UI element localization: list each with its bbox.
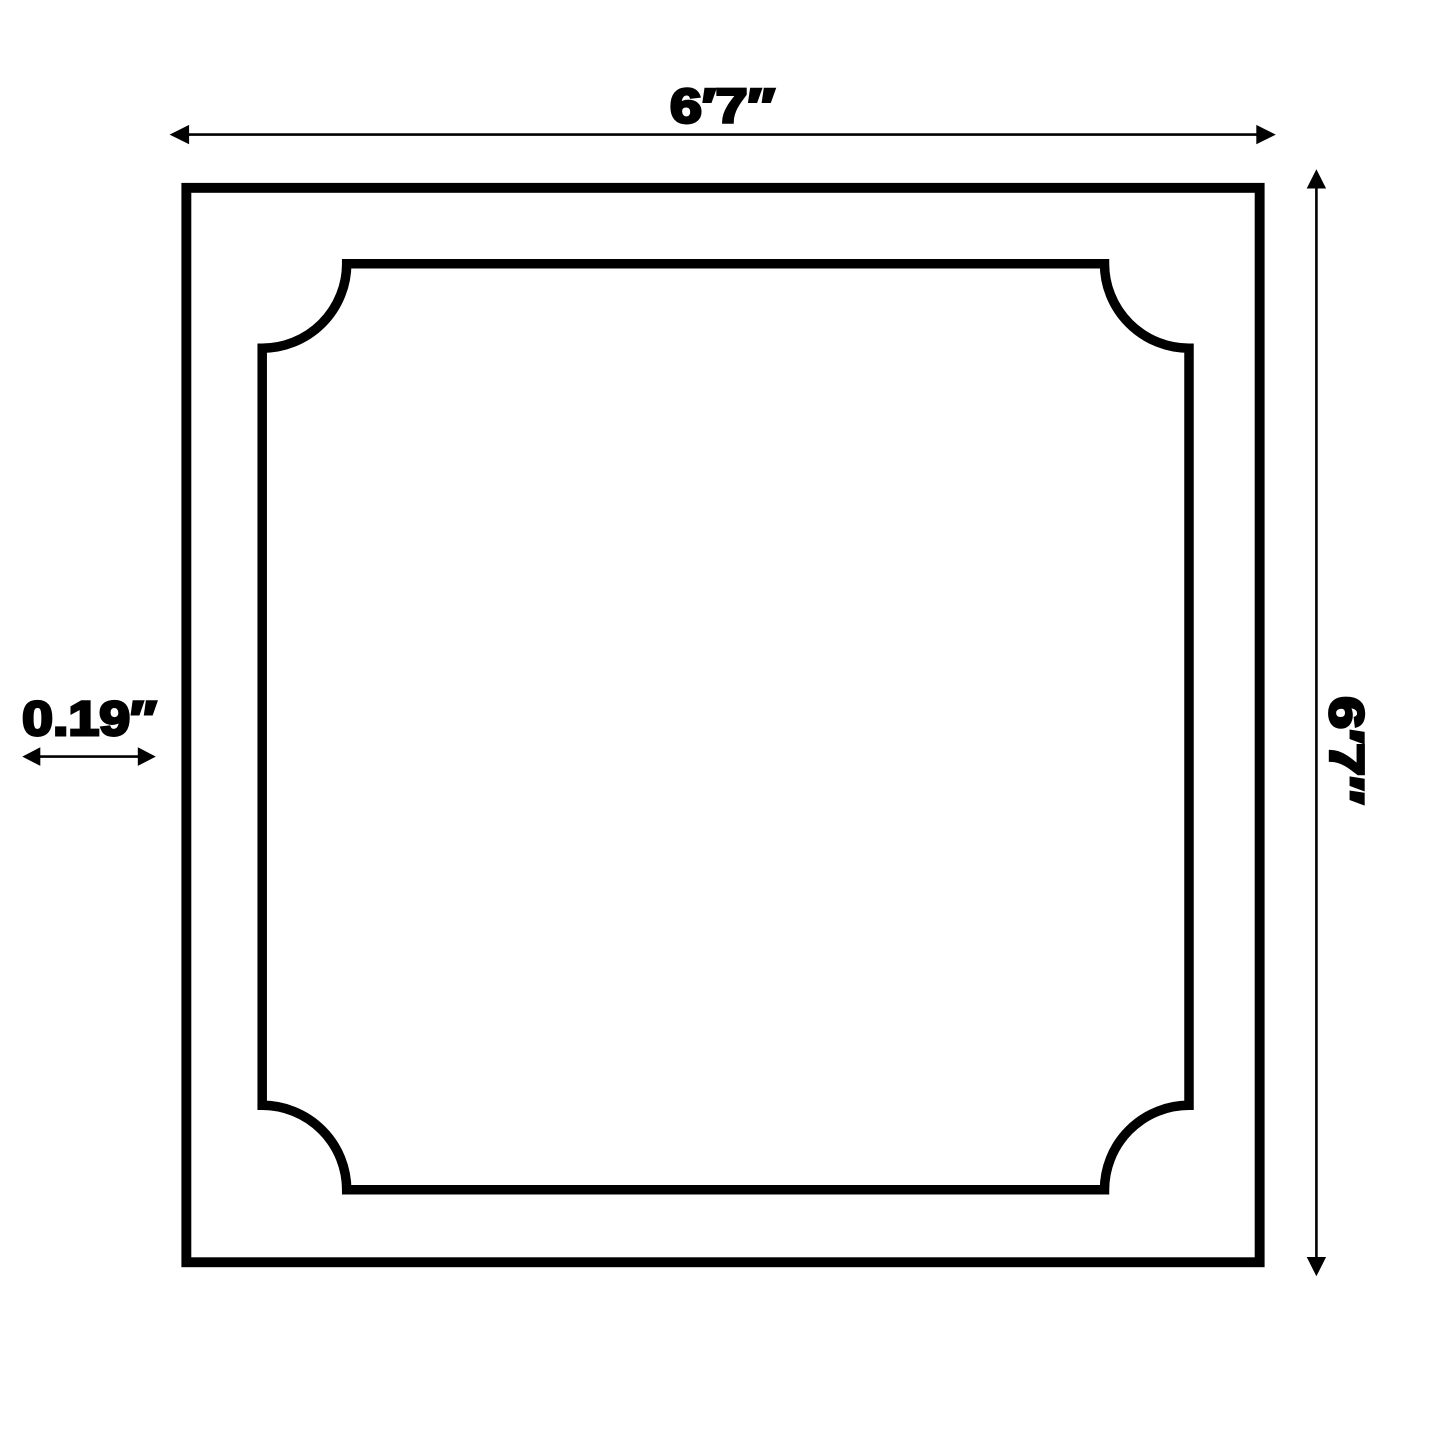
svg-text:6′7″: 6′7″ [1319,696,1372,804]
svg-text:6′7″: 6′7″ [670,81,775,134]
svg-text:0.19″: 0.19″ [22,693,157,746]
